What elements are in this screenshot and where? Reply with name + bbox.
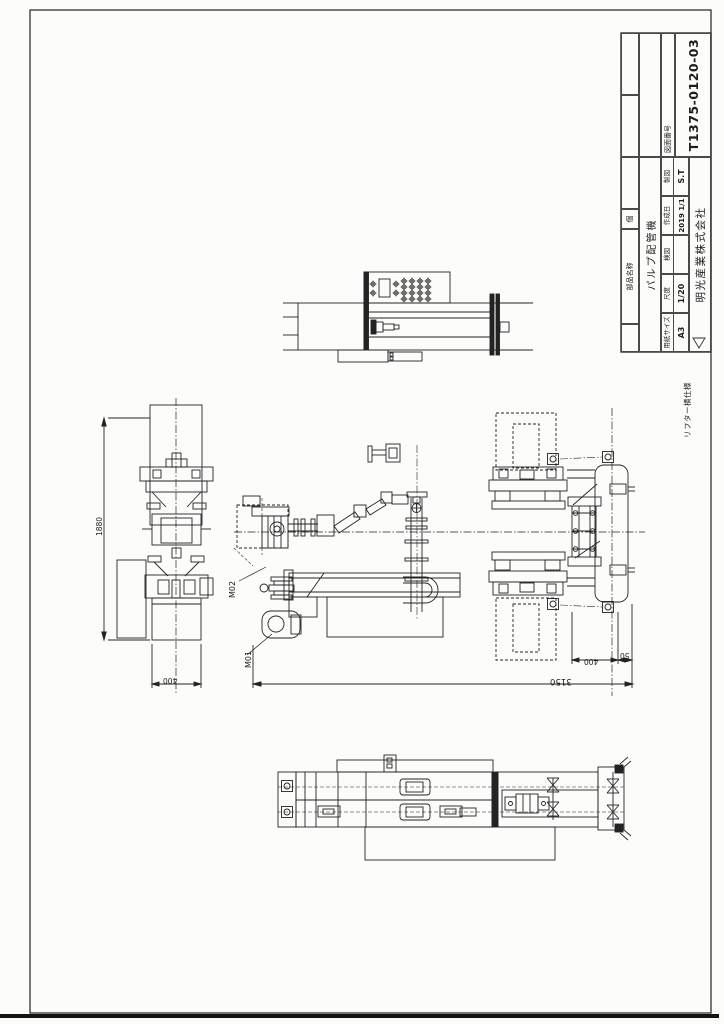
tb-cell-empty-3: [621, 95, 639, 157]
bom-cell-empty-1: [621, 324, 639, 352]
title-block: 部品名称 個 パルプ配管機 用紙サイズ A3 尺度 1/20 検図 作成日 20…: [621, 33, 711, 352]
field-scale-value: 1/20: [674, 275, 689, 312]
bom-header-qty: 個: [621, 209, 639, 229]
field-drafter-value: S.T: [674, 158, 689, 195]
field-check-label: 検図: [662, 236, 674, 273]
dim-base-width: 400: [163, 676, 177, 685]
field-paper-size: 用紙サイズ A3: [661, 313, 689, 352]
field-check-value: [674, 236, 689, 273]
drawing-sheet: 3150 400 50 1880 400 M02 M01 リフター横仕様 部品名…: [0, 0, 724, 1024]
field-paper-size-label: 用紙サイズ: [662, 314, 674, 351]
view-side-elevation: [283, 272, 533, 362]
spec-note: リフター横仕様: [676, 354, 698, 438]
field-paper-size-value: A3: [674, 314, 689, 351]
field-scale: 尺度 1/20: [661, 274, 689, 313]
field-date-label: 作成日: [662, 197, 674, 234]
dim-overall-length: 3150: [550, 676, 572, 686]
spec-note-text: リフター横仕様: [676, 354, 698, 438]
projection-symbol-icon: [692, 336, 707, 349]
dim-column-height: 1880: [95, 517, 104, 536]
drawing-canvas: [0, 0, 724, 1024]
drawing-title: パルプ配管機: [639, 157, 661, 352]
field-check: 検図: [661, 235, 689, 274]
field-date-value: 2019 1/1: [674, 197, 689, 234]
bom-header-part-name: 部品名称: [621, 229, 639, 324]
view-column-front: [102, 398, 213, 695]
field-drafter: 製図 S.T: [661, 157, 689, 196]
view-plan: [278, 755, 631, 860]
field-scale-label: 尺度: [662, 275, 674, 312]
tb-cell-empty-5: [639, 33, 661, 157]
dim-frame-width: 400: [584, 657, 598, 666]
callout-m01: M01: [244, 651, 253, 668]
field-drafter-label: 製図: [662, 158, 674, 195]
drawing-number-label: 図面番号: [661, 33, 675, 157]
drawing-number: T1375-0120-03: [675, 33, 711, 157]
bom-cell-empty-2: [621, 157, 639, 209]
tb-cell-empty-4: [621, 33, 639, 95]
view-main-assembly: [234, 408, 645, 696]
callout-m02: M02: [228, 581, 237, 598]
sheet-frame: [0, 10, 719, 1016]
field-date: 作成日 2019 1/1: [661, 196, 689, 235]
dim-frame-offset: 50: [620, 651, 630, 660]
company-name: 明光産業株式会社: [689, 157, 711, 352]
